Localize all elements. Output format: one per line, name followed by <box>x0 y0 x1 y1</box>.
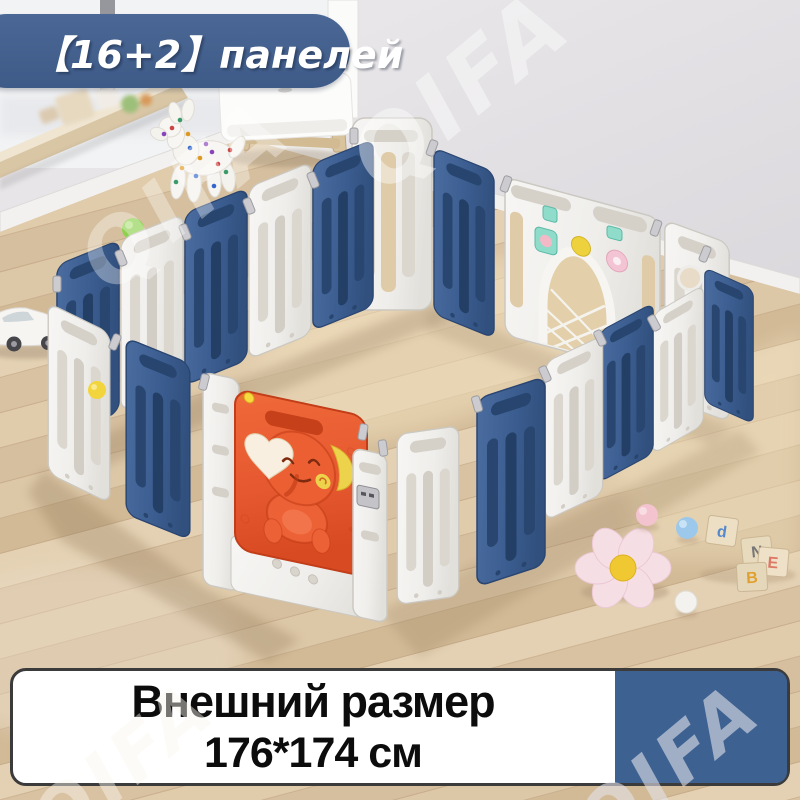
product-photo: d N E B 【16+2】панелей Внешний размер 176… <box>0 0 800 800</box>
playpen-panel-blue <box>705 268 754 424</box>
panel-count-badge: 【16+2】панелей <box>0 14 350 88</box>
yellow-ball <box>88 381 106 399</box>
playpen-panel-blue <box>185 188 247 385</box>
size-banner-title: Внешний размер <box>131 675 494 728</box>
svg-text:B: B <box>746 570 758 588</box>
banner-accent-block <box>615 671 787 783</box>
playpen-panel-white <box>545 336 602 521</box>
playpen-panel-blue <box>126 338 190 540</box>
size-banner-text: Внешний размер 176*174 см <box>13 671 613 783</box>
playpen-panel-blue <box>477 377 545 587</box>
hinge <box>350 128 358 144</box>
playpen-panel-blue <box>434 148 494 339</box>
hinge <box>378 440 388 457</box>
playpen-panel-white <box>249 162 311 359</box>
panel-count-label: 【16+2】панелей <box>32 24 403 79</box>
white-ball <box>675 591 698 618</box>
door-panel <box>235 389 367 577</box>
playpen-panel-blue <box>599 303 653 482</box>
playpen-panel-blue <box>313 140 373 331</box>
playpen-panel-white <box>48 303 110 503</box>
size-banner: Внешний размер 176*174 см <box>10 668 790 786</box>
size-banner-dimensions: 176*174 см <box>204 728 422 779</box>
playpen-panel-white <box>653 285 704 454</box>
door-latch <box>357 485 379 510</box>
hinge <box>53 276 61 292</box>
svg-text:E: E <box>767 555 779 573</box>
playpen-panel-white <box>397 426 459 605</box>
porthole <box>679 267 702 290</box>
